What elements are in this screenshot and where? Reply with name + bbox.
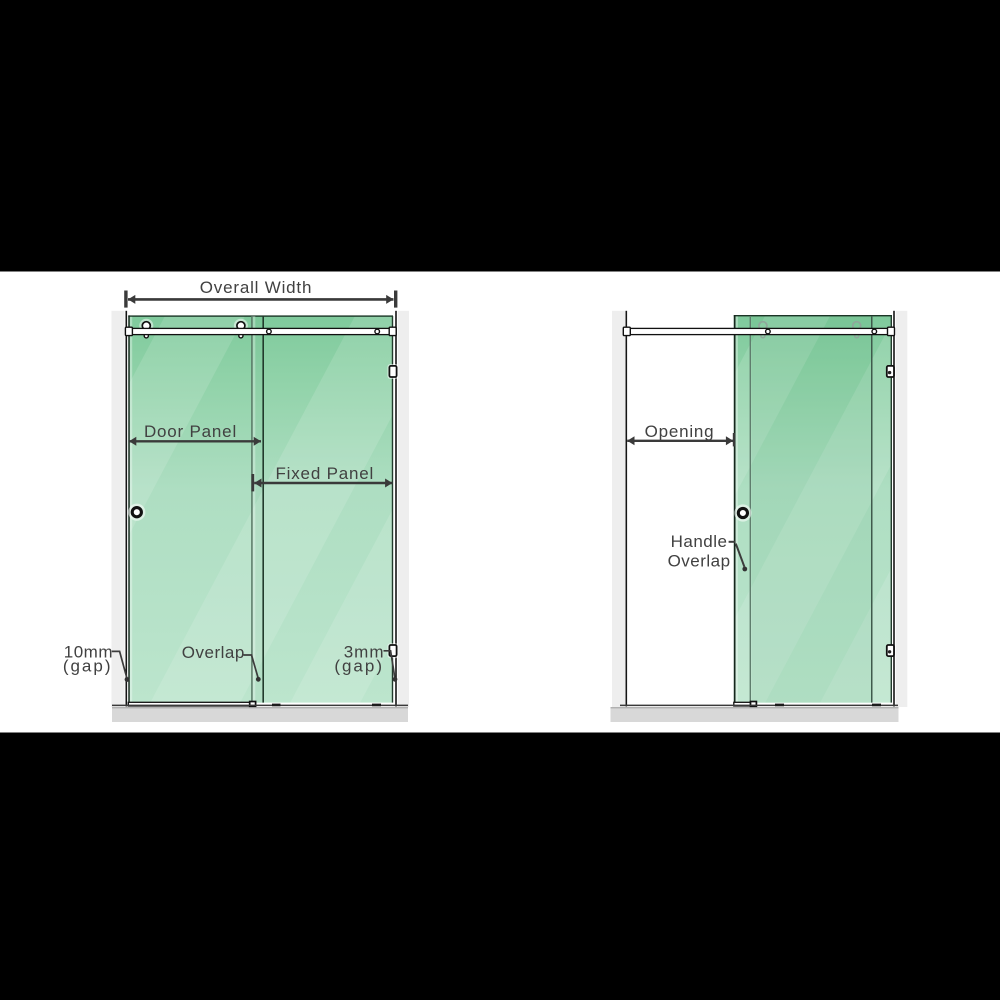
svg-text:Overlap: Overlap (668, 551, 731, 570)
svg-text:Opening: Opening (645, 422, 715, 441)
svg-text:(gap): (gap) (63, 657, 113, 676)
svg-text:Door Panel: Door Panel (144, 422, 237, 441)
svg-text:(gap): (gap) (334, 657, 384, 676)
svg-text:Handle: Handle (671, 532, 728, 551)
svg-text:Overlap: Overlap (182, 643, 245, 662)
svg-text:Overall Width: Overall Width (200, 278, 312, 297)
svg-text:Fixed Panel: Fixed Panel (276, 464, 375, 483)
